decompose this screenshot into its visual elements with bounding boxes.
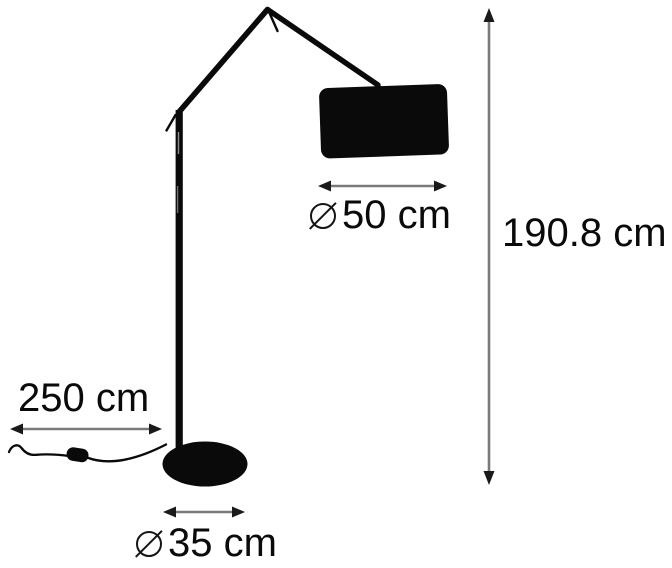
cord-length-arrow [10,424,162,435]
shade-diameter-label: 50 cm [310,193,451,237]
height-dimension-arrow [484,8,495,485]
lamp-pole [176,110,183,455]
power-plug [66,446,90,463]
power-cord [9,445,69,456]
total-height-value: 190.8 cm [502,211,667,255]
power-cord [87,445,166,462]
lamp-pole-highlight [177,186,178,213]
cord-length-label: 250 cm [18,376,149,420]
diameter-icon [136,531,162,557]
base-diameter-arrow [163,507,245,518]
lamp-upper-arm [179,10,268,113]
lamp-shade [319,84,449,159]
lamp-pole-highlight [178,132,179,154]
diameter-icon [310,203,336,229]
shade-diameter-value: 50 cm [342,193,451,237]
base-diameter-value: 35 cm [168,521,277,565]
lamp-shade-arm [268,10,379,86]
shade-diameter-arrow [318,181,447,192]
total-height-label: 190.8 cm [502,211,667,255]
cord-length-value: 250 cm [18,376,149,420]
dimension-diagram: 50 cm 190.8 cm 250 cm 35 cm [0,0,672,568]
base-diameter-label: 35 cm [136,521,277,565]
lamp-base [163,442,248,487]
lamp-line-art [0,0,672,568]
joint-detail-elbow [167,115,176,131]
